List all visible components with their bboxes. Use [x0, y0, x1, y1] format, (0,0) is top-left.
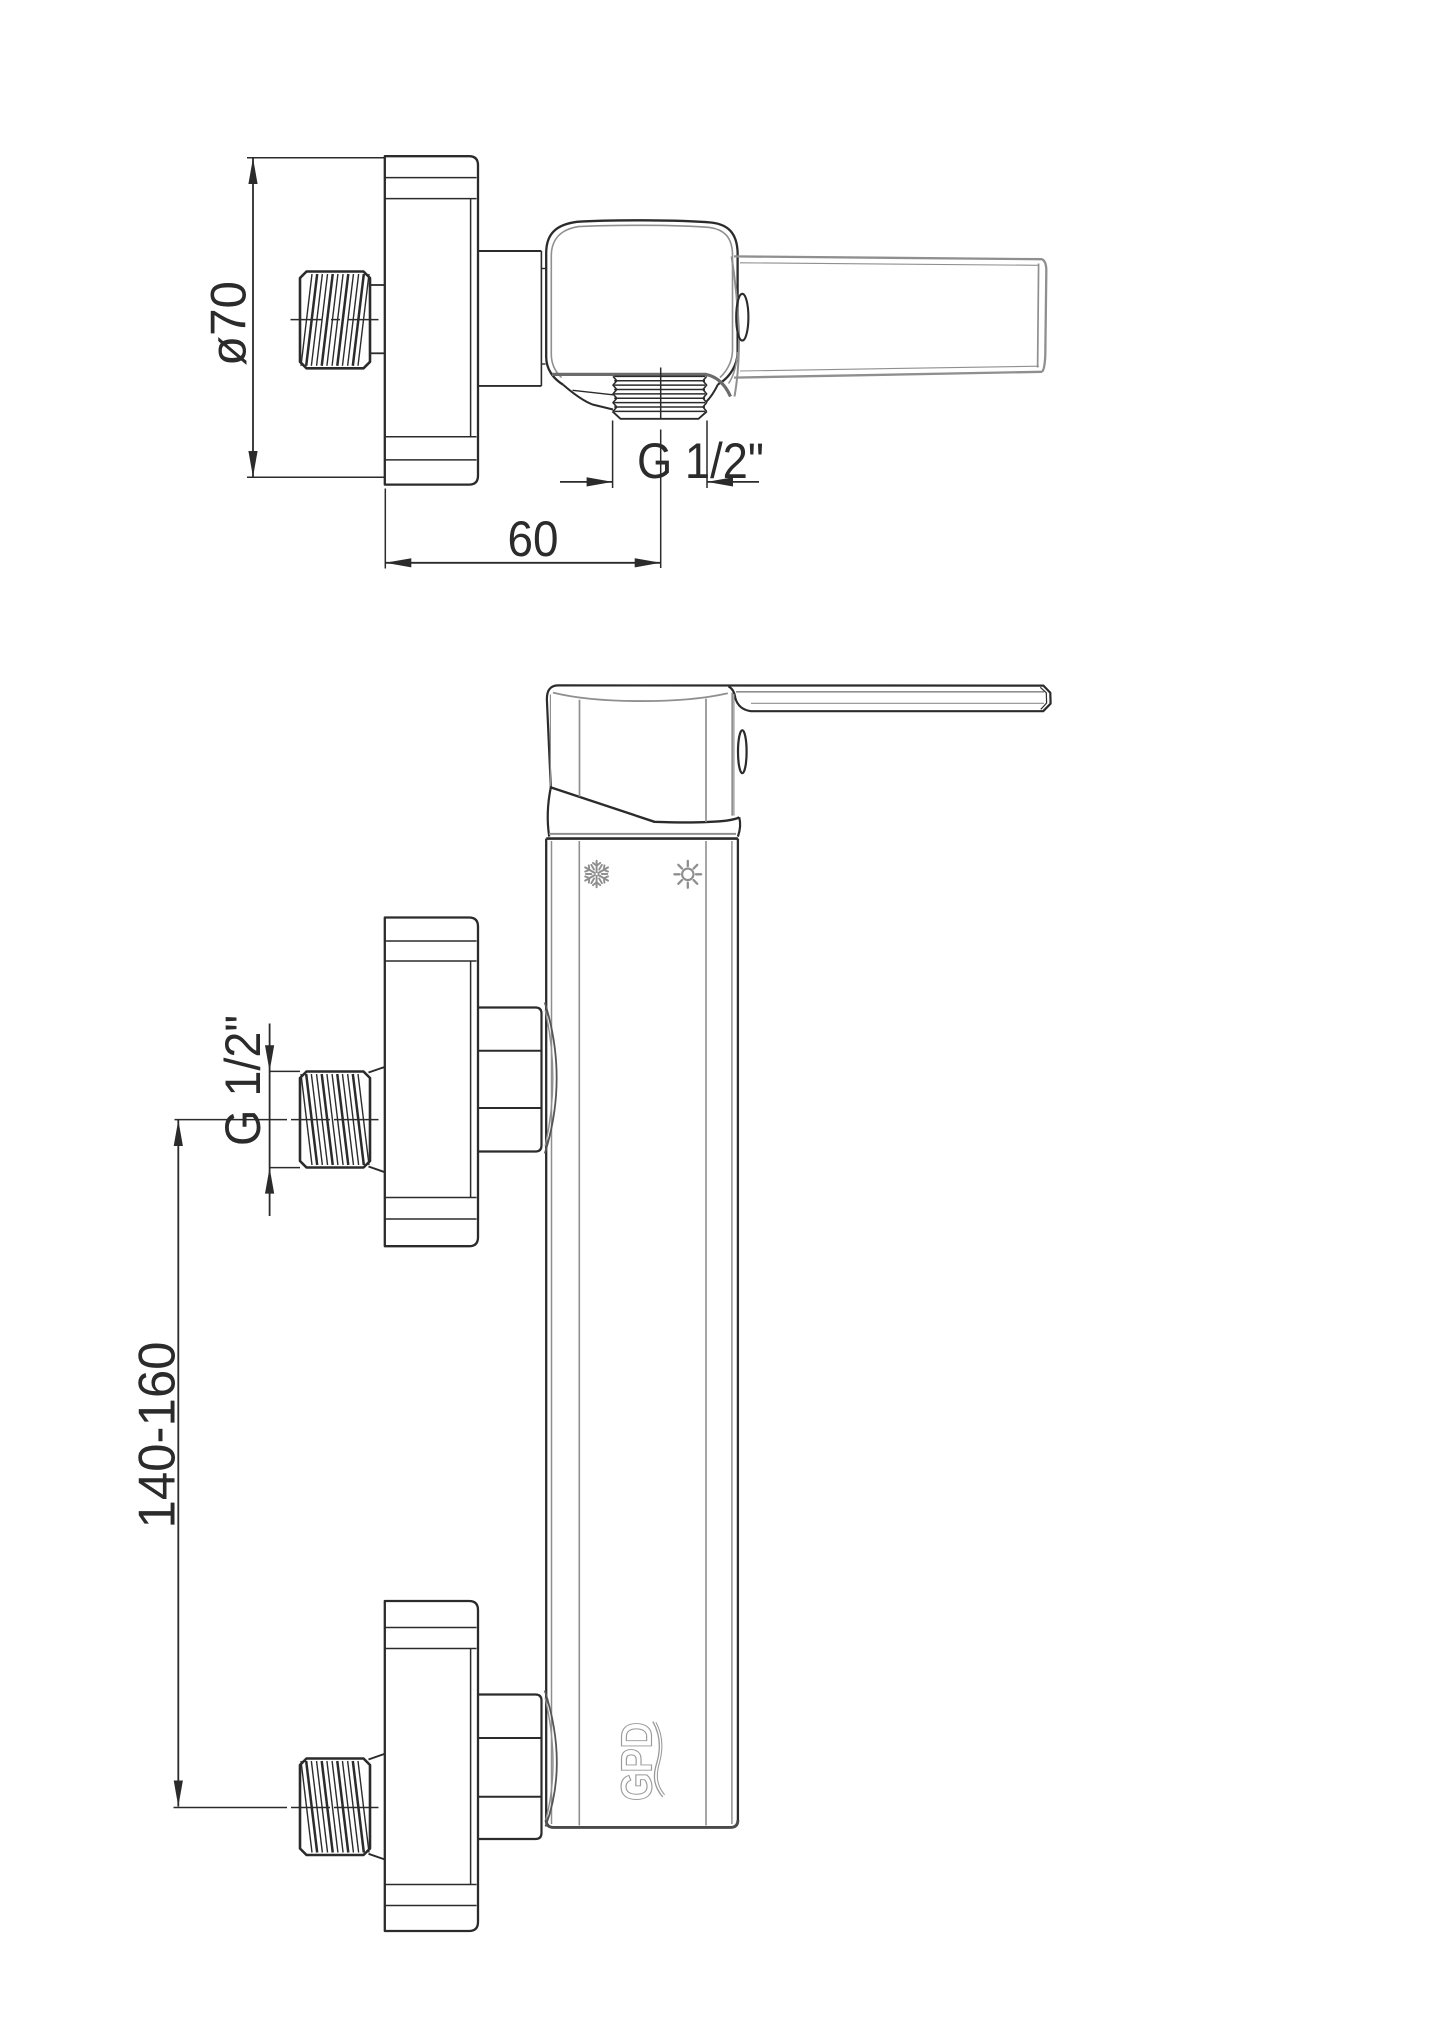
svg-text:60: 60	[508, 511, 559, 567]
svg-text:ø70: ø70	[201, 281, 257, 366]
svg-text:G 1/2": G 1/2"	[215, 1015, 271, 1146]
svg-text:140-160: 140-160	[129, 1342, 187, 1529]
svg-text:GPD: GPD	[613, 1722, 662, 1801]
svg-text:G 1/2": G 1/2"	[637, 433, 764, 489]
